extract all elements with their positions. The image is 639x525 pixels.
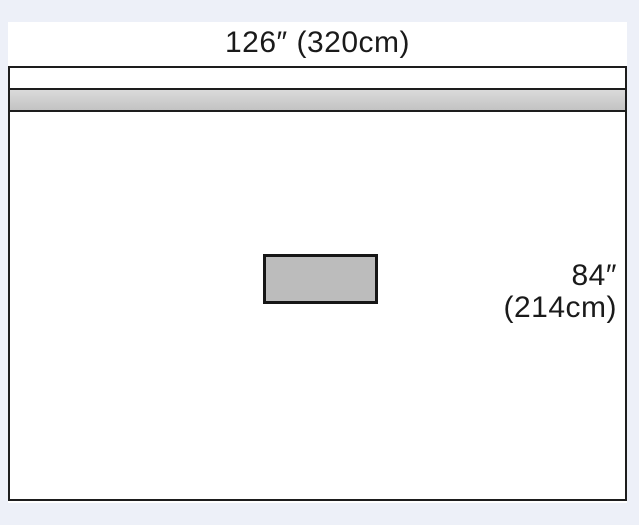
fenestration-rectangle <box>263 254 378 304</box>
adhesive-strip-band <box>10 88 625 112</box>
drape-diagram: 126″ (320cm) 84″ (214cm) <box>8 22 627 503</box>
height-dimension-label: 84″ (214cm) <box>503 260 617 324</box>
height-dimension-inches: 84″ <box>503 260 617 292</box>
height-dimension-cm: (214cm) <box>503 292 617 324</box>
width-dimension-label: 126″ (320cm) <box>8 22 627 64</box>
